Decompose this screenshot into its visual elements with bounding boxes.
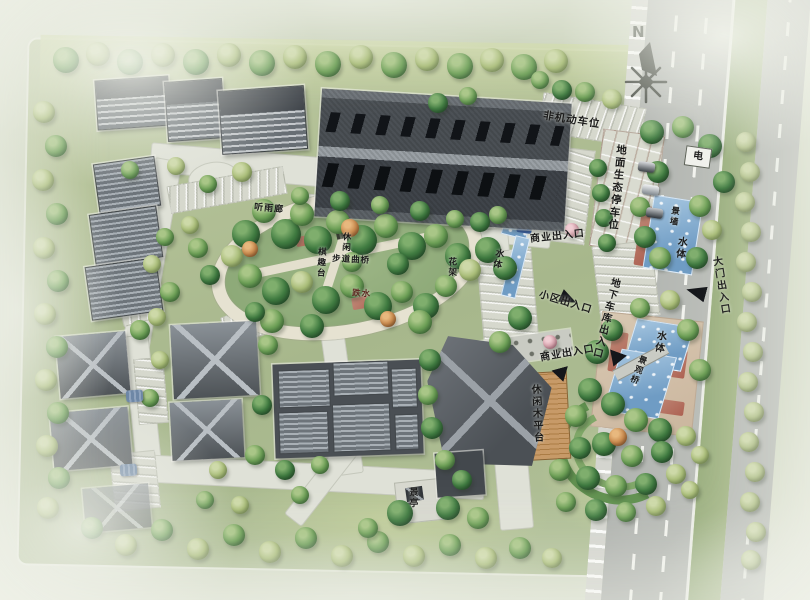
tree-icon	[330, 191, 350, 211]
tree-icon	[646, 496, 666, 516]
tree-icon	[245, 302, 265, 322]
tree-icon	[578, 378, 602, 402]
tree-icon	[312, 286, 340, 314]
tree-icon	[33, 101, 55, 123]
tree-icon	[283, 45, 307, 69]
tree-icon	[549, 459, 571, 481]
label-leisure: 休闲	[339, 232, 350, 253]
tree-icon	[291, 486, 309, 504]
tree-icon	[740, 492, 760, 512]
tree-icon	[737, 312, 757, 332]
tree-icon	[736, 132, 756, 152]
tree-icon	[609, 428, 627, 446]
tree-icon	[148, 308, 166, 326]
tree-icon	[598, 234, 616, 252]
tree-icon	[151, 519, 173, 541]
complex-wing-2	[332, 361, 389, 397]
tree-icon	[601, 392, 625, 416]
tree-icon	[508, 306, 532, 330]
tree-icon	[217, 43, 241, 67]
tree-icon	[121, 161, 139, 179]
tree-icon	[713, 171, 735, 193]
complex-wing-4	[278, 411, 329, 455]
tree-icon	[181, 216, 199, 234]
tree-icon	[34, 303, 56, 325]
tree-icon	[143, 255, 161, 273]
label-feature-wall: 景墙	[667, 205, 680, 227]
tree-icon	[544, 49, 568, 73]
tree-icon	[156, 228, 174, 246]
tree-icon	[262, 277, 290, 305]
tree-icon	[742, 282, 762, 302]
tree-icon	[681, 481, 699, 499]
building-north-a3	[218, 85, 308, 155]
complex-wing-3	[391, 368, 418, 409]
tree-icon	[452, 470, 472, 490]
tree-icon	[291, 271, 313, 293]
tree-icon	[691, 446, 709, 464]
solar-panel-2	[120, 463, 138, 476]
tree-icon	[435, 450, 455, 470]
tree-icon	[702, 220, 722, 240]
tree-icon	[381, 52, 407, 78]
tree-icon	[509, 537, 531, 559]
tree-icon	[421, 417, 443, 439]
north-arrow-icon	[616, 40, 672, 110]
tree-icon	[738, 372, 758, 392]
tree-icon	[331, 545, 353, 567]
tree-icon	[436, 496, 460, 520]
tree-icon	[36, 435, 58, 457]
tree-icon	[275, 460, 295, 480]
tree-icon	[660, 290, 680, 310]
tree-icon	[569, 437, 591, 459]
tree-icon	[48, 467, 70, 489]
label-power-room: 电	[692, 150, 704, 163]
compass-north-label: N	[632, 24, 646, 41]
tree-icon	[46, 203, 68, 225]
tree-icon	[245, 445, 265, 465]
tree-icon	[387, 253, 409, 275]
tree-icon	[410, 201, 430, 221]
tree-icon	[188, 238, 208, 258]
tree-icon	[480, 48, 504, 72]
tree-icon	[199, 175, 217, 193]
tree-icon	[424, 224, 448, 248]
tree-icon	[290, 202, 314, 226]
tree-icon	[291, 187, 309, 205]
tree-icon	[736, 252, 756, 272]
tree-icon	[624, 408, 648, 432]
tree-icon	[589, 159, 607, 177]
tree-icon	[196, 491, 214, 509]
tree-icon	[47, 402, 69, 424]
tree-icon	[447, 53, 473, 79]
tree-icon	[231, 496, 249, 514]
tree-icon	[380, 311, 396, 327]
tree-icon	[151, 351, 169, 369]
tree-icon	[53, 47, 79, 73]
tree-icon	[470, 212, 490, 232]
tree-icon	[556, 492, 576, 512]
tree-icon	[616, 502, 636, 522]
tree-icon	[592, 184, 610, 202]
tree-icon	[565, 405, 587, 427]
building-b-dormer-row-1	[325, 112, 564, 146]
tree-icon	[311, 456, 329, 474]
building-south-complex	[272, 359, 423, 458]
building-sw-d5	[170, 399, 245, 461]
tree-icon	[743, 342, 763, 362]
complex-wing-6	[394, 414, 419, 451]
tree-icon	[249, 50, 275, 76]
tree-icon	[408, 310, 432, 334]
tree-icon	[45, 135, 67, 157]
tree-icon	[672, 116, 694, 138]
tree-icon	[415, 47, 439, 71]
tree-icon	[576, 466, 600, 490]
tree-icon	[489, 331, 511, 353]
complex-wing-5	[332, 403, 392, 453]
tree-icon	[418, 385, 438, 405]
tree-icon	[200, 265, 220, 285]
tree-icon	[32, 169, 54, 191]
tree-icon	[117, 49, 143, 75]
building-b-dormer-row-2	[322, 163, 562, 201]
compass: N	[616, 24, 672, 110]
tree-icon	[167, 157, 185, 175]
tree-icon	[295, 527, 317, 549]
tree-icon	[543, 335, 557, 349]
label-chess-terrace: 棋趣台	[314, 247, 325, 279]
tree-icon	[489, 206, 507, 224]
tree-icon	[160, 282, 180, 302]
tree-icon	[37, 497, 59, 519]
tree-icon	[475, 547, 497, 569]
tree-icon	[300, 314, 324, 338]
tree-icon	[358, 518, 378, 538]
tree-icon	[686, 247, 708, 269]
tree-icon	[238, 264, 262, 288]
tree-icon	[575, 82, 595, 102]
tree-icon	[446, 210, 464, 228]
tree-icon	[209, 461, 227, 479]
car-2	[641, 184, 659, 196]
tree-icon	[130, 320, 150, 340]
label-pergola: 花架	[446, 257, 456, 278]
tree-icon	[428, 93, 448, 113]
tree-icon	[676, 426, 696, 446]
car-3	[645, 207, 663, 219]
site-plan-canvas: N 非机动车位 地面生态停车位 电 景墙 水体 商业出入口 水体 小区出入口 地…	[0, 0, 810, 600]
tree-icon	[640, 120, 664, 144]
tree-icon	[666, 464, 686, 484]
car-1	[637, 161, 655, 173]
tree-icon	[47, 270, 69, 292]
tree-icon	[187, 538, 209, 560]
tree-icon	[252, 395, 272, 415]
tree-icon	[648, 418, 672, 442]
tree-icon	[689, 359, 711, 381]
tree-icon	[315, 51, 341, 77]
tree-icon	[542, 548, 562, 568]
tree-icon	[740, 162, 760, 182]
solar-panel-1	[126, 389, 144, 402]
tree-icon	[374, 214, 398, 238]
building-sw-d4	[170, 321, 260, 399]
tree-icon	[435, 275, 457, 297]
tree-icon	[223, 524, 245, 546]
tree-icon	[677, 319, 699, 341]
tree-icon	[605, 475, 627, 497]
building-north-a1	[94, 75, 171, 130]
tree-icon	[739, 432, 759, 452]
tree-icon	[552, 80, 572, 100]
complex-wing-1	[278, 369, 331, 409]
tree-icon	[419, 349, 441, 371]
tree-icon	[630, 298, 650, 318]
tree-icon	[689, 195, 711, 217]
tree-icon	[141, 389, 159, 407]
tree-icon	[258, 335, 278, 355]
tree-icon	[242, 241, 258, 257]
label-water-fall: 跌水	[352, 290, 372, 301]
tree-icon	[634, 226, 656, 248]
tree-icon	[741, 222, 761, 242]
tree-icon	[649, 247, 671, 269]
tree-icon	[46, 336, 68, 358]
tree-icon	[35, 369, 57, 391]
tree-icon	[259, 541, 281, 563]
label-leisure-wood-deck: 休闲木平台	[528, 384, 543, 445]
tree-icon	[585, 499, 607, 521]
tree-icon	[151, 43, 175, 67]
label-winding-bridge: 步道曲桥	[332, 255, 370, 267]
tree-icon	[183, 49, 209, 75]
tree-icon	[746, 522, 766, 542]
tree-icon	[635, 473, 657, 495]
tree-icon	[744, 402, 764, 422]
building-north-a2	[164, 78, 226, 142]
tree-icon	[33, 237, 55, 259]
tree-icon	[741, 550, 761, 570]
tree-icon	[531, 71, 549, 89]
tree-icon	[439, 534, 461, 556]
tree-icon	[735, 192, 755, 212]
tree-icon	[459, 259, 481, 281]
tree-icon	[621, 445, 643, 467]
tree-icon	[86, 42, 110, 66]
tree-icon	[391, 281, 413, 303]
tree-icon	[403, 545, 425, 567]
tree-icon	[459, 87, 477, 105]
tree-icon	[467, 507, 489, 529]
tree-icon	[221, 245, 243, 267]
tree-icon	[115, 534, 137, 556]
tree-icon	[745, 462, 765, 482]
tree-icon	[232, 162, 252, 182]
tree-icon	[81, 517, 103, 539]
tree-icon	[651, 441, 673, 463]
tree-icon	[349, 45, 373, 69]
label-pavilion: 景亭	[407, 487, 417, 509]
tree-icon	[371, 196, 389, 214]
